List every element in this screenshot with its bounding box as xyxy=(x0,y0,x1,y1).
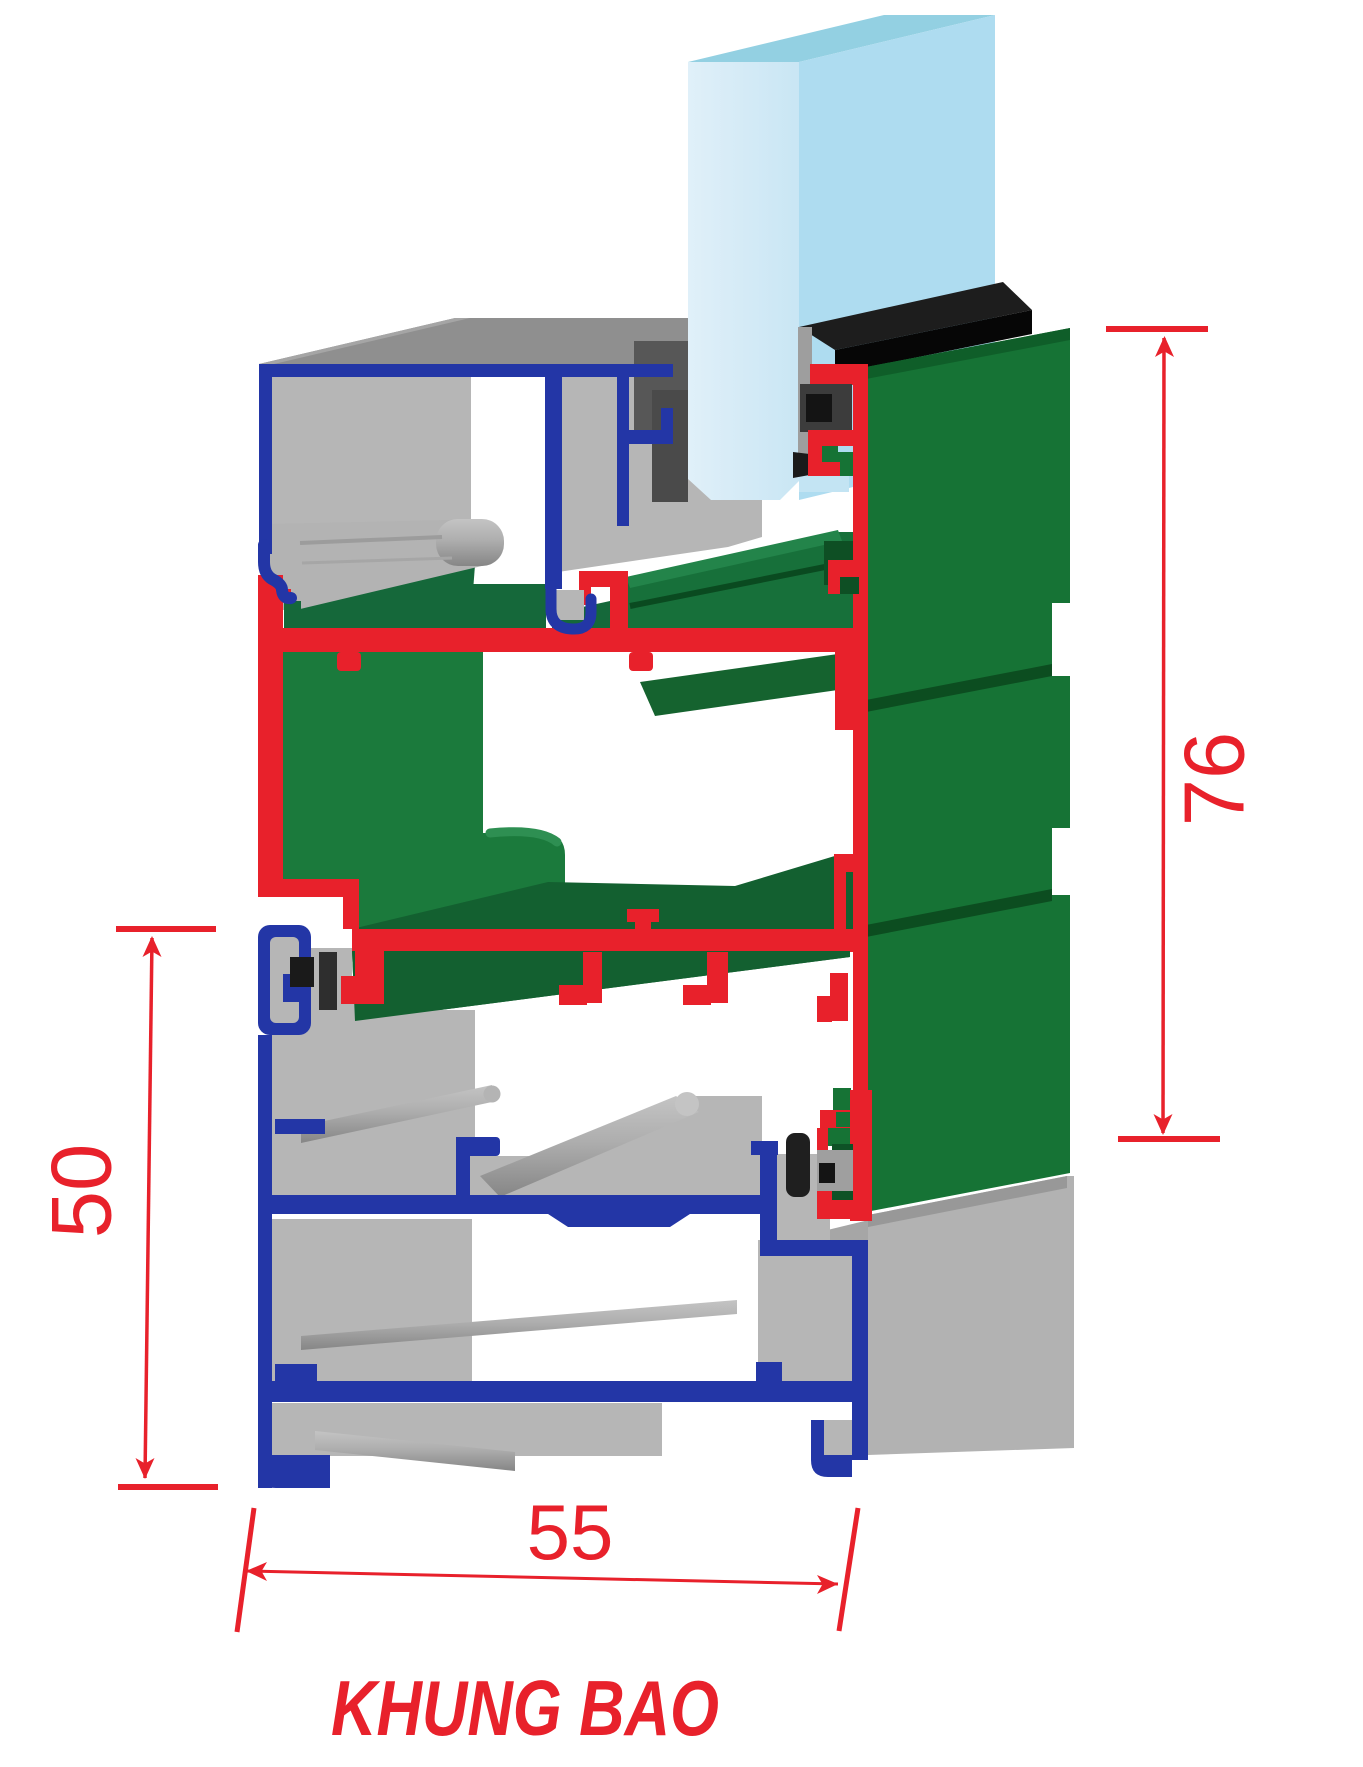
svg-text:55: 55 xyxy=(527,1488,614,1576)
svg-text:76: 76 xyxy=(1168,732,1263,827)
svg-text:50: 50 xyxy=(35,1144,130,1239)
svg-text:KHUNG BAO: KHUNG BAO xyxy=(331,1664,719,1752)
